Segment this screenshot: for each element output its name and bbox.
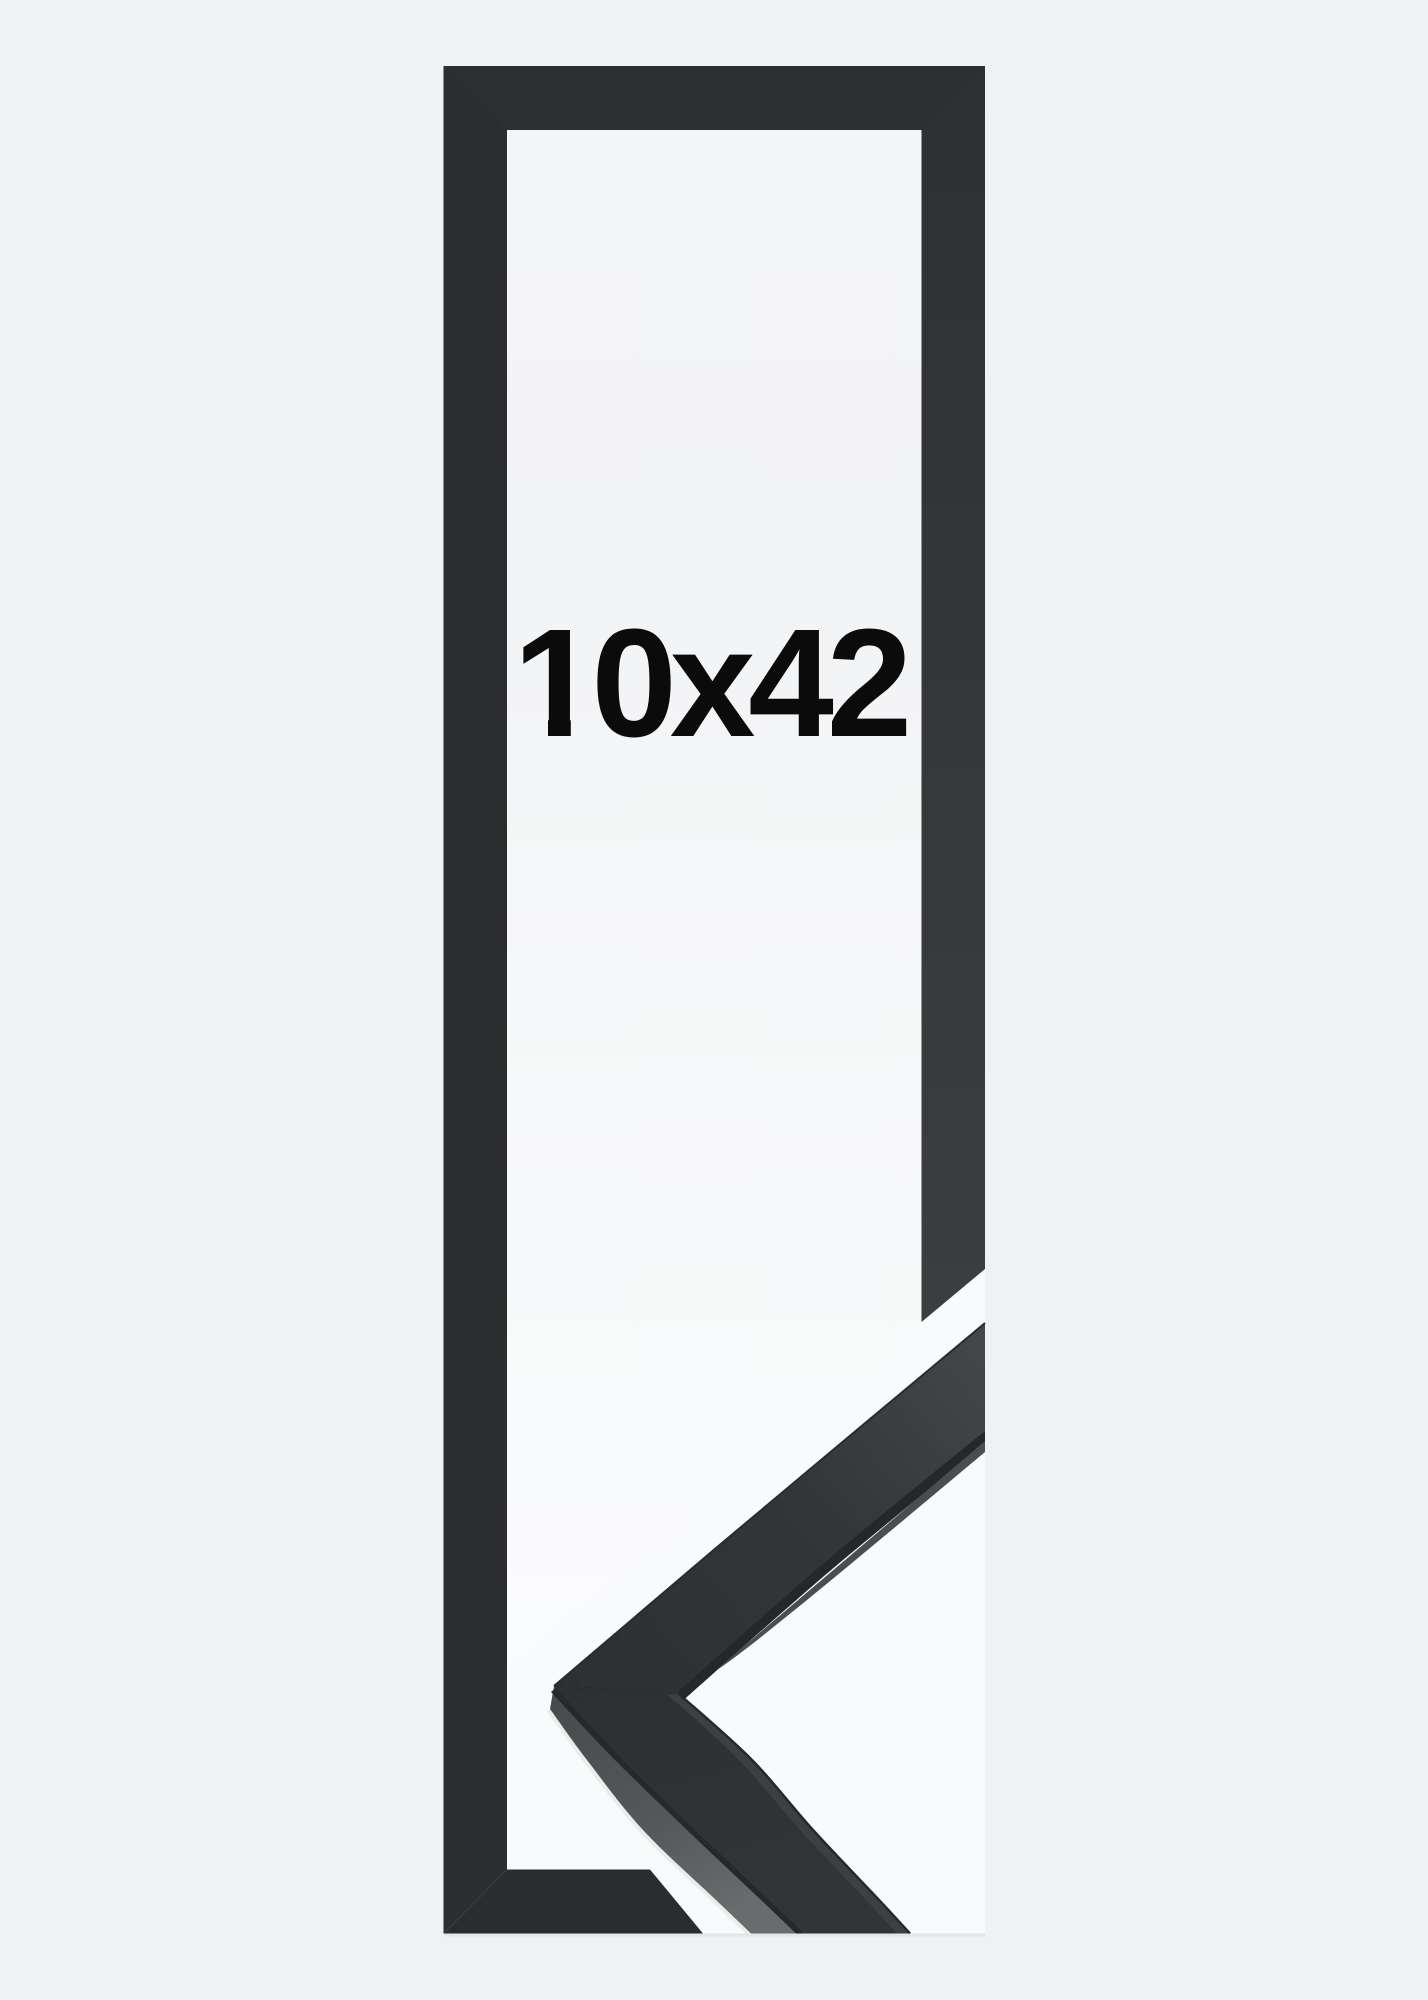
svg-text:10x42: 10x42 xyxy=(513,597,907,769)
